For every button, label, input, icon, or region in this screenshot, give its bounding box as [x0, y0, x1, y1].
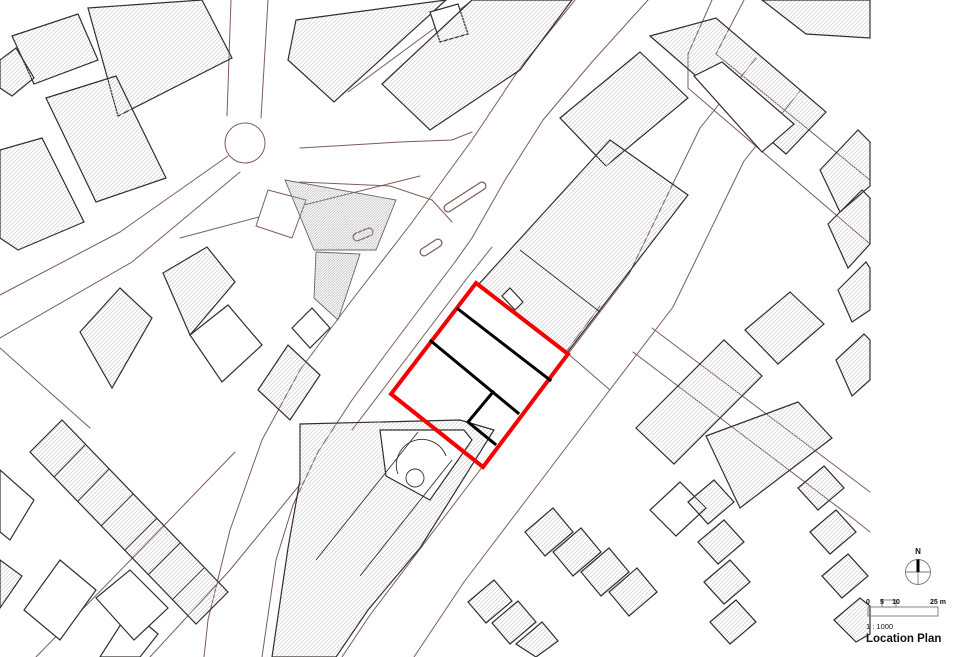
building-ml-5: [292, 308, 330, 348]
building-ne-of-site: [478, 140, 688, 353]
building-ml-big: [80, 288, 152, 388]
site-division-b: [431, 341, 518, 413]
road-roundabout-arm-n-b: [261, 0, 268, 118]
location-plan-page: N 0 5 10 25 m 1 : 1000 Location Plan: [0, 0, 960, 657]
building-bl-4: [0, 560, 22, 608]
building-rm-upper: [745, 292, 824, 364]
north-compass-icon: [905, 559, 931, 585]
location-plan-drawing: N 0 5 10 25 m 1 : 1000 Location Plan: [0, 0, 960, 657]
map-shapes-layer: [0, 0, 870, 657]
building-ne-upper: [560, 52, 688, 166]
traffic-island-a-fill: [448, 186, 482, 208]
house-col1-2: [698, 520, 744, 564]
building-rm-right: [836, 334, 870, 396]
house-col2-3: [822, 554, 868, 598]
house-col2-1: [798, 466, 844, 510]
traffic-island-b-fill: [424, 243, 438, 252]
house-col1-4: [710, 600, 756, 644]
parcel-line-bl-a: [0, 348, 90, 428]
scale-tick-10: 10: [892, 599, 900, 606]
roundabout-circle: [225, 123, 265, 163]
pavement-nw-of-site: [352, 247, 492, 430]
building-bl-2: [24, 560, 96, 640]
building-right-strip-3: [838, 262, 870, 322]
road-roundabout-arm-e-a: [300, 132, 472, 148]
plan-title: Location Plan: [866, 633, 941, 645]
scale-unit-label: 25 m: [930, 599, 946, 606]
green-blob-upper: [285, 180, 396, 250]
building-tr-corner: [762, 0, 870, 38]
building-bl-1: [0, 470, 34, 540]
building-tl-4: [0, 138, 84, 250]
north-label: N: [915, 547, 921, 556]
scale-bar: 0 5 10 25 m: [866, 599, 946, 616]
scale-ratio-label: 1 : 1000: [866, 622, 893, 631]
scale-tick-5: 5: [880, 599, 884, 606]
house-col1-3: [704, 560, 750, 604]
scale-tick-0: 0: [866, 599, 870, 606]
green-blob-tail: [314, 252, 360, 320]
house-col2-2: [810, 510, 856, 554]
house-col2-4: [834, 598, 870, 642]
legend: N 0 5 10 25 m 1 : 1000 Location Plan: [866, 547, 946, 645]
